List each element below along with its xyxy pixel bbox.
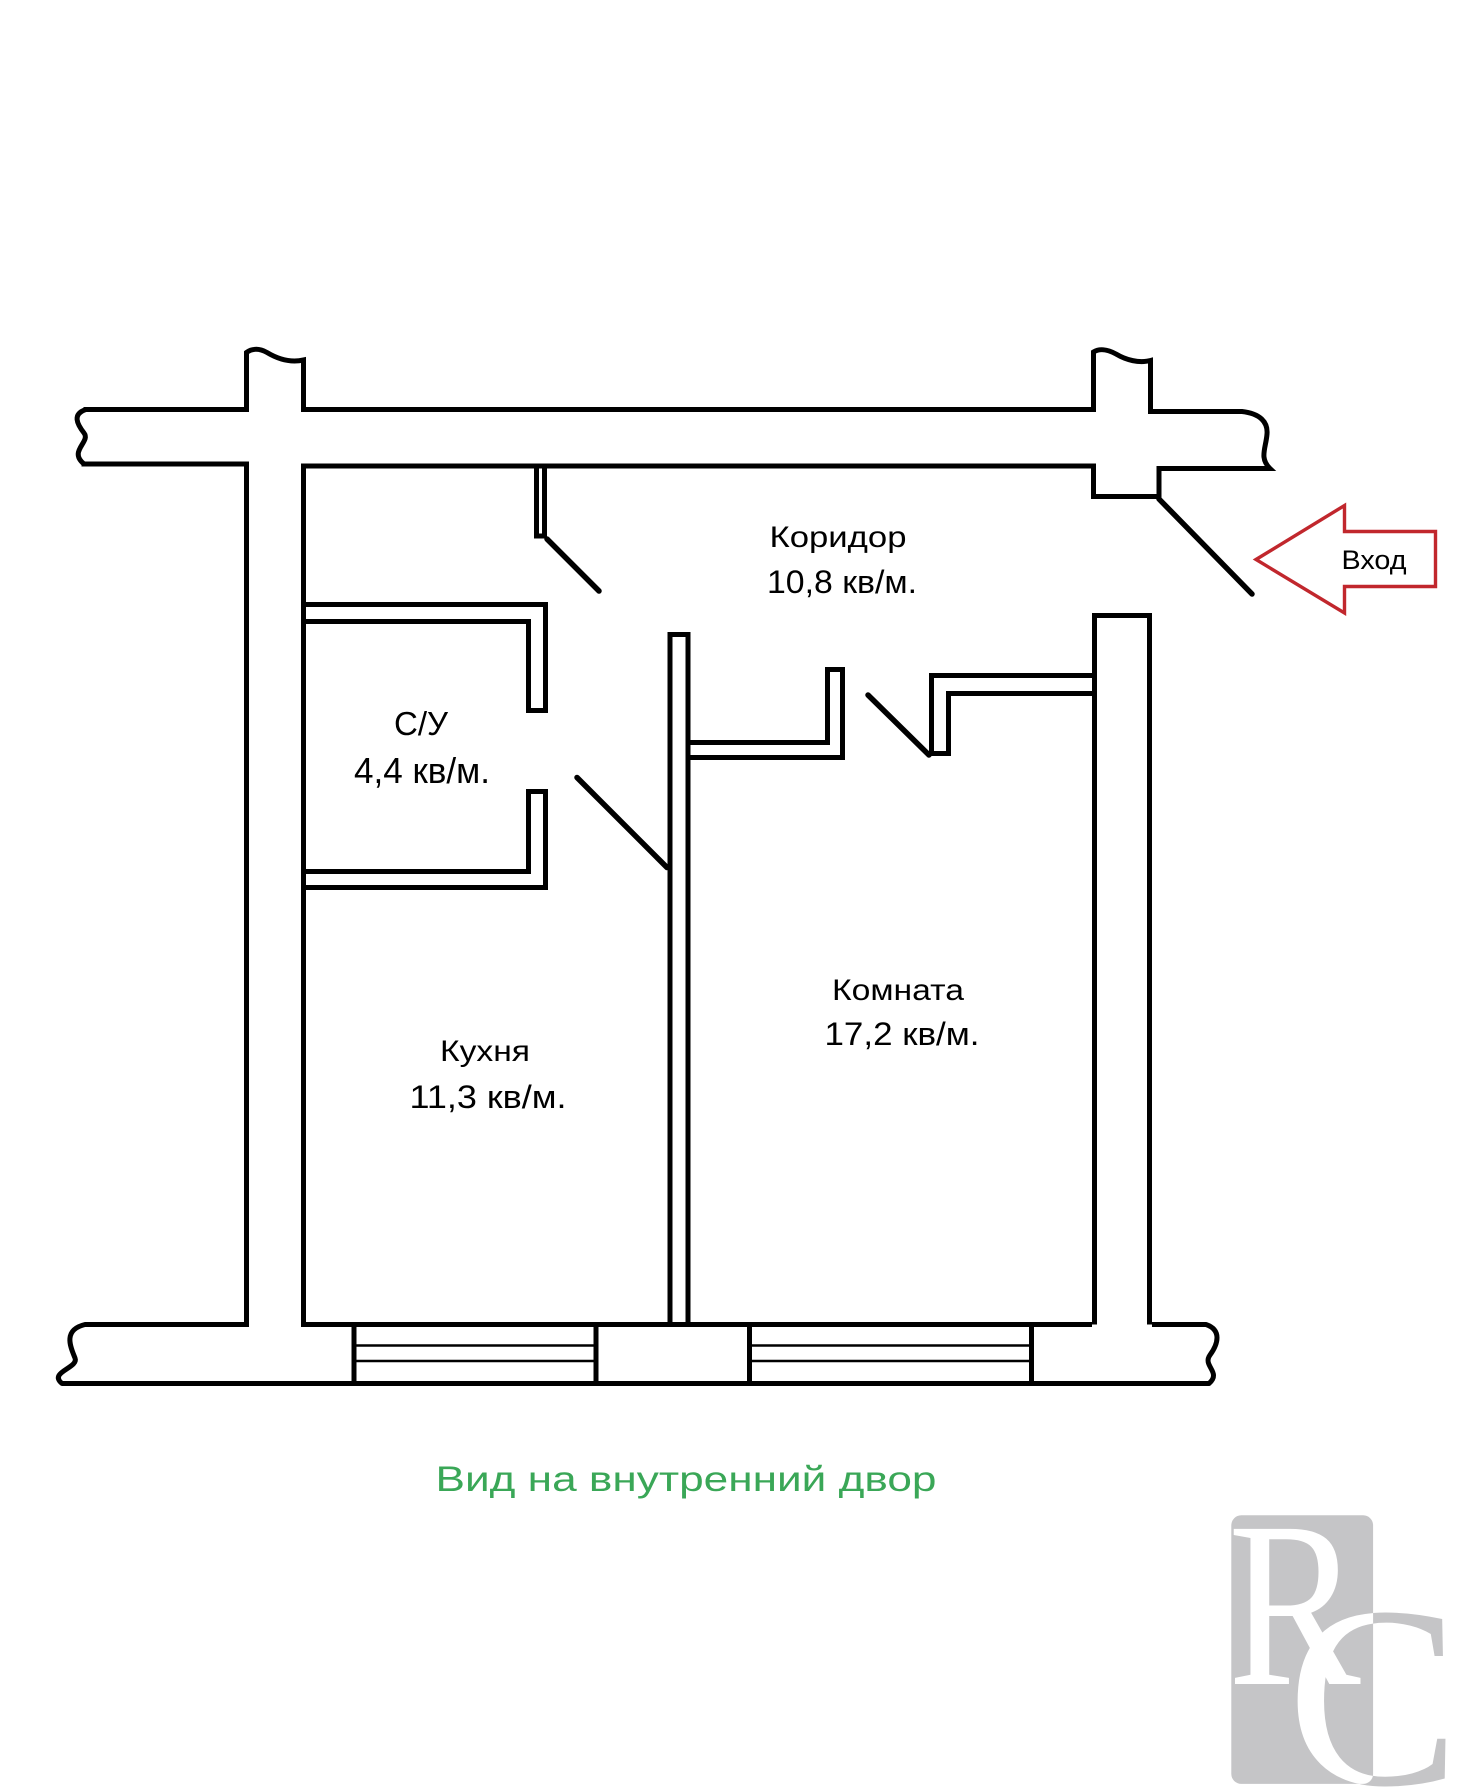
svg-text:4,4 кв/м.: 4,4 кв/м.	[354, 750, 490, 791]
svg-text:С/У: С/У	[394, 705, 449, 742]
svg-text:Вид на внутренний двор: Вид на внутренний двор	[436, 1460, 937, 1499]
svg-text:17,2 кв/м.: 17,2 кв/м.	[825, 1016, 980, 1052]
svg-text:Вход: Вход	[1342, 545, 1407, 575]
svg-text:Коридор: Коридор	[770, 521, 907, 554]
svg-text:Комната: Комната	[832, 974, 964, 1007]
svg-text:11,3 кв/м.: 11,3 кв/м.	[410, 1079, 567, 1115]
svg-text:R: R	[1228, 1474, 1361, 1736]
svg-text:10,8 кв/м.: 10,8 кв/м.	[767, 564, 917, 600]
svg-text:Кухня: Кухня	[440, 1035, 530, 1068]
